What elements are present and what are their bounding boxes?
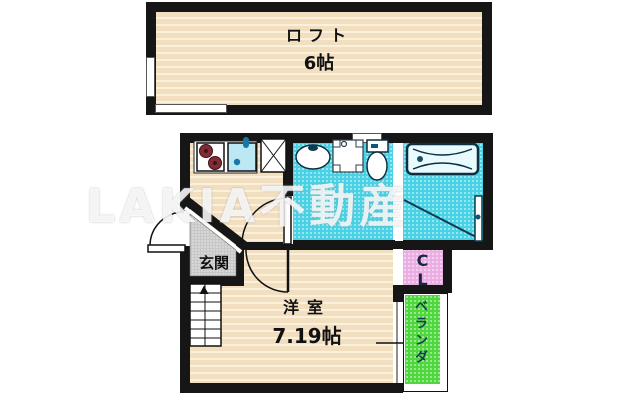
loft-label: ロフト xyxy=(156,22,482,46)
loft-window-bottom xyxy=(155,104,227,113)
wall-left xyxy=(180,133,190,393)
window-glass-line xyxy=(396,302,398,383)
wall-entrance-bottom xyxy=(180,276,244,286)
wall-top xyxy=(180,133,493,143)
veranda-label: ベランダ xyxy=(413,299,426,389)
wall-wetarea-bottom xyxy=(283,240,493,250)
western-room-label-group: 洋室 7.19帖 xyxy=(245,294,369,349)
floorplan: ロフト 6帖 xyxy=(0,0,640,400)
wall-right-bath xyxy=(483,133,493,250)
western-room-label: 洋室 xyxy=(245,294,369,318)
closet-label: CL xyxy=(414,251,430,285)
wall-bottom xyxy=(180,383,403,393)
lavatory-floor xyxy=(293,143,393,240)
loft-window-left xyxy=(146,57,155,97)
bathroom-floor xyxy=(403,143,483,240)
loft-size: 6帖 xyxy=(156,49,482,75)
window-main-right xyxy=(393,302,403,383)
entrance-opening xyxy=(180,211,190,246)
window-top-wall xyxy=(352,133,382,143)
entrance-label: 玄関 xyxy=(193,252,235,273)
wall-lavatory-left xyxy=(283,143,293,248)
wall-door-bar xyxy=(240,242,294,250)
loft-label-group: ロフト 6帖 xyxy=(156,22,482,75)
closet-opening xyxy=(393,249,403,285)
western-room-size: 7.19帖 xyxy=(245,320,369,349)
